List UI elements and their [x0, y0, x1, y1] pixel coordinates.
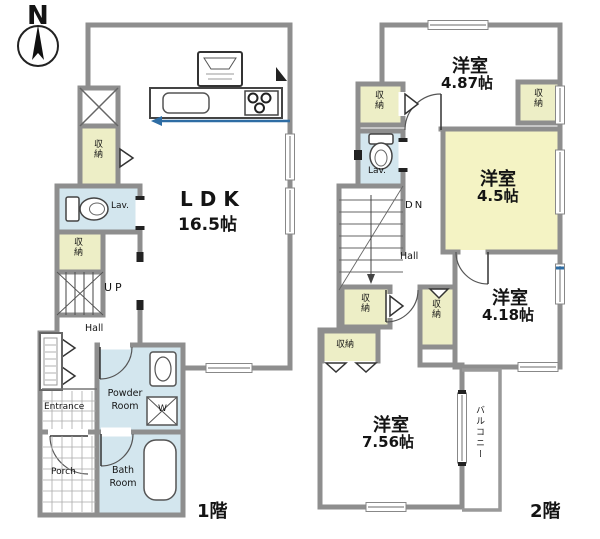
toilet-bowl-inner: [375, 150, 387, 166]
lav-label-2f: Lav.: [368, 166, 386, 176]
sash-mark: [458, 390, 466, 394]
stairs-2f: [339, 186, 403, 290]
shaft-x: [80, 88, 118, 126]
vent-mark: [354, 150, 362, 160]
stair-arrow-head: [367, 274, 375, 284]
ldk-area-label: 16.5帖: [178, 210, 237, 235]
gap-powder-door: [100, 341, 130, 350]
closet-door-mark-2f-a: [390, 296, 403, 316]
storage-label-2f-c: 収納: [336, 337, 354, 350]
storage-label-2f-tr: 収納: [532, 89, 545, 109]
toilet-bowl-inner: [90, 203, 105, 215]
door-arc-2f-418: [456, 252, 488, 284]
lav-label-1f: Lav.: [111, 201, 129, 211]
hinge-mark: [399, 168, 408, 172]
storage-label-2f-tl: 収納: [373, 91, 386, 111]
room-487-area: 4.87帖: [441, 72, 493, 93]
sliding-door-mark: [137, 300, 144, 310]
closet-door-mark-1f-a: [120, 149, 133, 167]
hinge-mark: [136, 196, 145, 200]
bath-room-label: Bath Room: [102, 465, 144, 491]
storage-label-1f-a: 収納: [92, 140, 105, 160]
floor1-title: 1階: [197, 497, 228, 523]
room-756-area: 7.56帖: [362, 431, 414, 452]
porch-label: Porch: [51, 467, 76, 477]
closet-door-mark-shoes-a: [62, 339, 75, 357]
gap-lav-door-2f: [399, 140, 408, 168]
hinge-mark: [136, 226, 145, 230]
washer-label: W: [158, 404, 167, 414]
kitchen: [150, 52, 290, 126]
balcony-label: バルコニー: [473, 405, 486, 460]
sash-mark: [458, 462, 466, 466]
storage-label-2f-b: 収納: [430, 300, 443, 320]
floor-plan: N LDK 16.5帖 Hall UP Lav. 収納 収納 Powder Ro…: [0, 0, 600, 539]
closet-door-mark-shoes-b: [62, 367, 75, 385]
toilet-icon-1f: [66, 197, 108, 221]
stairs-1f: [57, 272, 103, 315]
closet-door-mark-2f-c1: [326, 363, 346, 372]
toilet-tank: [66, 197, 79, 221]
room-45-area: 4.5帖: [477, 185, 519, 206]
gap-bath-door: [101, 428, 131, 437]
stairs-dn-label: DN: [405, 200, 424, 211]
closet-door-mark-2f-tl: [405, 94, 418, 114]
gap-toilet-door-1f: [136, 198, 145, 226]
hinge-mark: [399, 138, 408, 142]
compass-north-label: N: [27, 1, 49, 31]
hall-label-1f: Hall: [85, 323, 103, 334]
entrance-label: Entrance: [44, 402, 84, 412]
hall-label-2f: Hall: [400, 251, 418, 262]
vanity-basin: [155, 357, 171, 381]
closet-door-mark-2f-c2: [356, 363, 376, 372]
ldk-room-label: LDK: [180, 187, 246, 211]
powder-room-label: Powder Room: [99, 388, 151, 414]
sliding-door-mark: [137, 252, 144, 262]
compass-icon: [18, 25, 58, 66]
floorplan-canvas: [0, 0, 600, 539]
toilet-icon-2f: [369, 134, 393, 169]
storage-label-2f-a: 収納: [359, 294, 372, 314]
kitchen-sink-icon: [163, 93, 209, 113]
shoe-cabinet-icon: [40, 333, 62, 390]
bathtub-icon: [144, 440, 176, 500]
floor2-title: 2階: [530, 497, 561, 523]
room-418-area: 4.18帖: [482, 304, 534, 325]
storage-label-1f-b: 収納: [72, 238, 85, 258]
corner-door-mark: [276, 67, 287, 81]
stairs-up-label: UP: [104, 281, 125, 294]
